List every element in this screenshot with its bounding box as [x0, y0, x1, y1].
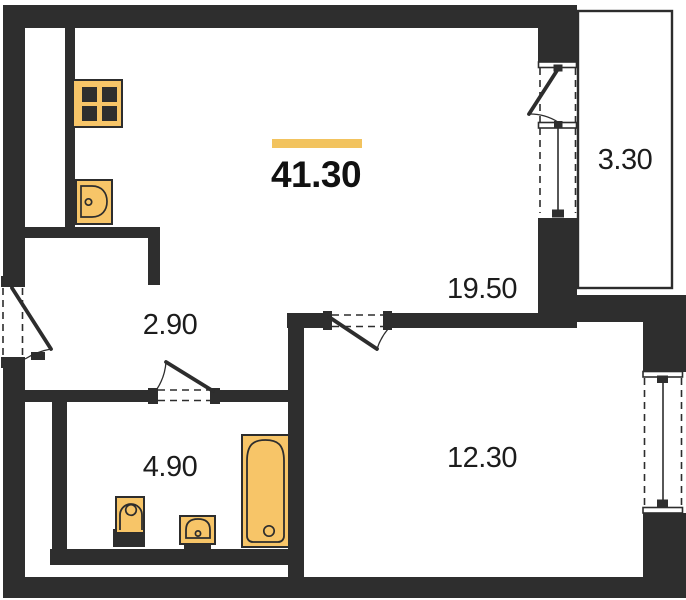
bedroom-door-jamb-right	[383, 311, 392, 330]
bedroom-door	[329, 315, 388, 349]
bathroom-door-jamb-left	[148, 388, 158, 404]
floor-plan-svg: 41.30 19.50 3.30 2.90 4.90 12.30	[0, 0, 686, 600]
balcony-window-handle-bottom	[552, 210, 564, 218]
bedroom-door-leaf	[329, 317, 377, 349]
kitchen-sink-icon	[76, 180, 112, 224]
bathroom-door-leaf	[166, 362, 213, 391]
washbasin-icon	[180, 516, 215, 549]
entrance-jamb-top	[1, 276, 25, 287]
bedroom-door-jamb-left	[323, 311, 332, 330]
balcony-window-handle-top	[554, 121, 563, 128]
toilet-icon	[113, 497, 145, 547]
toilet-bowl-circle	[126, 505, 137, 516]
bedroom-window-handle-top	[657, 376, 668, 384]
wall-bottom	[3, 577, 686, 598]
bedroom-window-handle-bottom	[657, 500, 668, 508]
total-area-label: 41.30	[271, 154, 361, 195]
balcony-door	[529, 62, 577, 218]
balcony-area-label: 3.30	[598, 144, 652, 176]
bathroom-door-swing-arc	[157, 362, 166, 389]
balcony-pier-top	[538, 5, 577, 62]
central-wall	[288, 313, 304, 592]
wall-under-balcony	[577, 295, 643, 322]
balcony-door-leaf	[529, 69, 558, 114]
kitchen-sink-drain	[85, 199, 91, 205]
bathroom-north-wall-left	[25, 390, 148, 402]
entrance-door-leaf	[12, 288, 51, 349]
bathroom-south-wall	[50, 549, 297, 565]
wall-right-upper	[643, 295, 686, 372]
stove-burner	[82, 87, 97, 102]
total-area-bar	[272, 139, 362, 148]
hallway-top-wall	[25, 227, 160, 238]
stove-burner	[102, 106, 117, 121]
balcony-pier-bottom	[538, 218, 577, 328]
entrance-jamb-bottom	[1, 357, 25, 368]
stove-burner	[82, 106, 97, 121]
bathtub-icon	[242, 435, 289, 547]
floor-plan: 41.30 19.50 3.30 2.90 4.90 12.30	[0, 0, 686, 600]
bedroom-window	[643, 372, 683, 514]
washbasin-drain	[195, 531, 200, 536]
bathroom-west-wall	[52, 402, 67, 549]
entrance-door	[3, 288, 51, 359]
wall-left-upper	[3, 5, 25, 276]
stove-icon	[73, 80, 122, 127]
bathtub-drain	[264, 526, 274, 536]
bedroom-door-swing-arc	[377, 329, 388, 349]
bathroom-door	[157, 362, 213, 401]
wall-left-lower	[3, 368, 25, 598]
bathroom-area-label: 4.90	[143, 451, 197, 483]
kitchen-duct-wall	[65, 28, 75, 238]
living-area-label: 19.50	[447, 273, 517, 305]
wall-right-lower	[643, 513, 686, 598]
bedroom-area-label: 12.30	[447, 442, 517, 474]
stove-burner	[102, 87, 117, 102]
bedroom-top-wall-right	[392, 313, 541, 328]
balcony-door-swing-arc	[529, 114, 558, 122]
hallway-area-label: 2.90	[143, 309, 197, 341]
hallway-stub-wall	[148, 238, 160, 285]
wall-top	[3, 5, 541, 28]
bedroom-window-sill-bottom	[643, 508, 683, 514]
balcony-door-hinge-handle	[554, 65, 563, 72]
